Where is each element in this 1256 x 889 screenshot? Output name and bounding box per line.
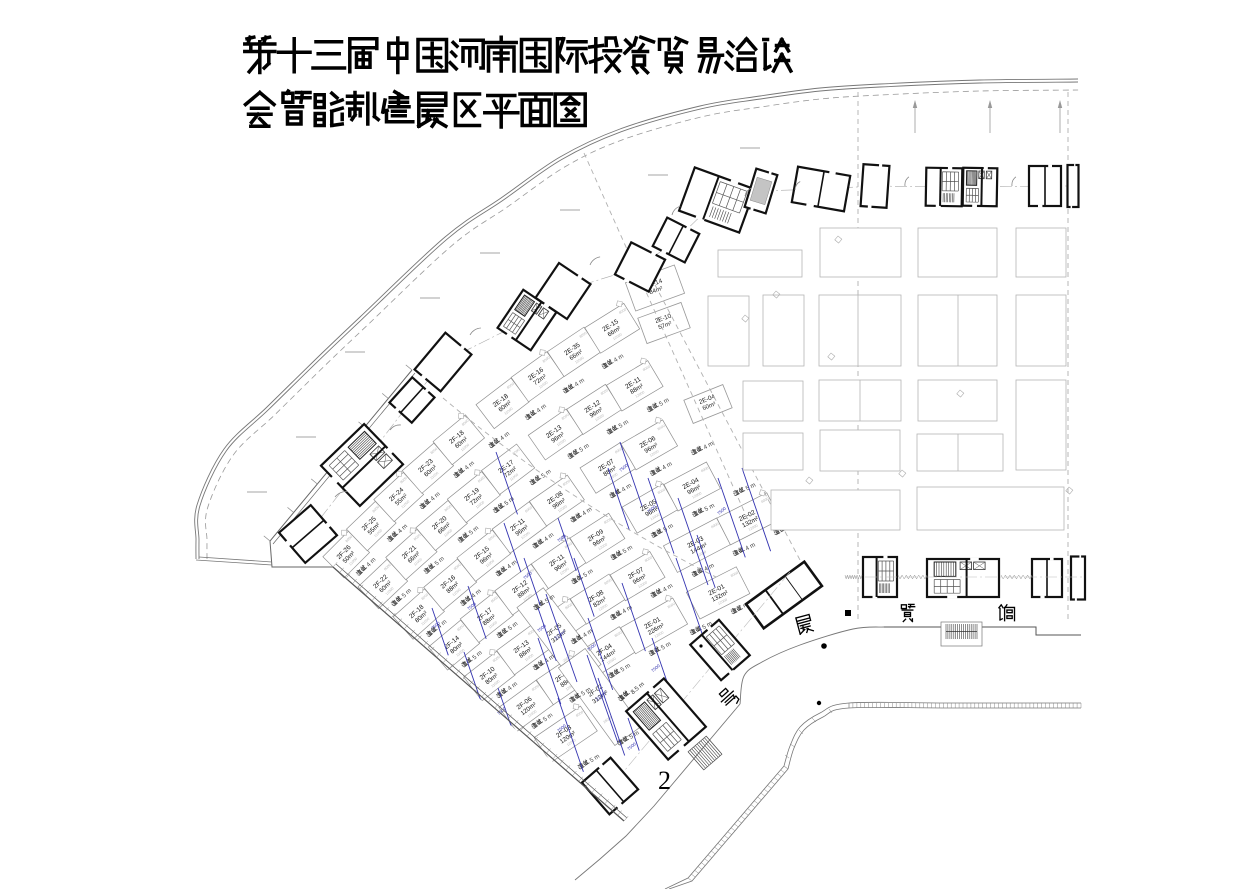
svg-text:2: 2 (658, 766, 671, 795)
